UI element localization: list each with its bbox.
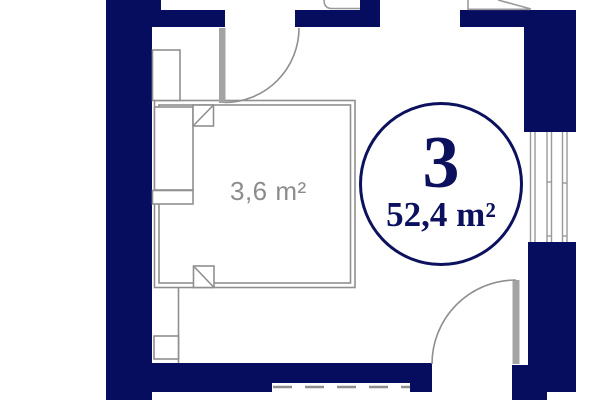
unit-badge[interactable]: 3 52,4 m² [359, 102, 523, 266]
door-leaf-bottom [513, 280, 520, 364]
closet-door-fold-bottom [194, 266, 215, 288]
window-glazing [531, 132, 568, 242]
wardrobe-unit [155, 107, 194, 190]
door-swing-arc-bottom [432, 280, 516, 364]
unit-total-area: 52,4 m² [386, 197, 496, 232]
hall-cabinet [154, 336, 179, 359]
closet-door-fold-top [193, 105, 214, 126]
door-leaf-top [219, 28, 226, 103]
fixture-outline-right [468, 0, 531, 10]
floor-plan: 3 52,4 m² 3,6 m² [0, 0, 600, 400]
closet-area-label: 3,6 m² [230, 176, 307, 207]
door-swing-arc-top [225, 28, 300, 103]
shelf-unit [153, 191, 194, 205]
unit-number: 3 [423, 132, 460, 195]
cabinet-above-closet [153, 50, 181, 101]
fixture-outline-left [324, 0, 360, 9]
